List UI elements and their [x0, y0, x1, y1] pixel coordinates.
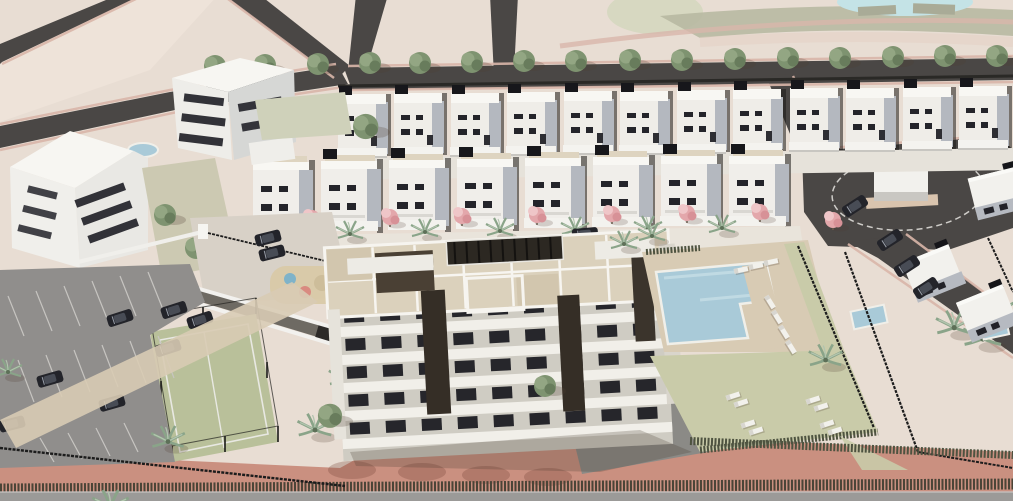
roof-pergola [446, 235, 563, 265]
windows [179, 93, 229, 146]
central-apartment-building [324, 230, 685, 462]
architectural-aerial-render [0, 0, 1013, 501]
south-road [0, 492, 1013, 501]
gate-pillar [198, 224, 208, 239]
render-canvas [0, 0, 1013, 501]
utility-kiosk-face [874, 192, 928, 201]
